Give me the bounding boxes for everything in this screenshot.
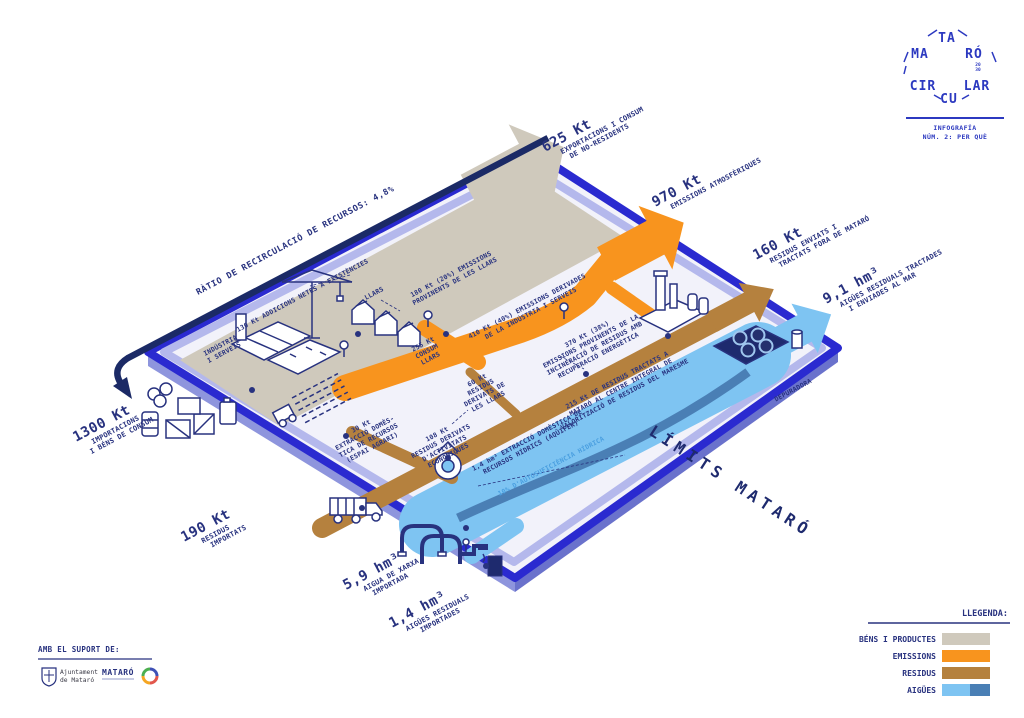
logo-part-lar: LAR bbox=[964, 79, 990, 94]
logo-subtitle-1: INFOGRAFÍA bbox=[933, 123, 976, 132]
legend-label-emissions: EMISSIONS bbox=[893, 652, 937, 661]
label-waste-out: 160 Kt RESIDUS ENVIATS I TRACTATS FORA D… bbox=[750, 193, 871, 277]
legend: LLEGENDA: BÉNS I PRODUCTES EMISSIONS RES… bbox=[859, 609, 1010, 696]
label-network-water: 5,9 hm³ AIGUA DE XARXA IMPORTADA bbox=[340, 543, 424, 608]
ajuntament-label-2: de Mataró bbox=[60, 676, 94, 684]
ajuntament-label-1: Ajuntament bbox=[60, 669, 98, 676]
support-title: AMB EL SUPORT DE: bbox=[38, 645, 120, 654]
logo-part-cir: CIR bbox=[910, 79, 936, 94]
label-water-out: 9,1 hm³ AIGÜES RESIDUALS TRACTADES I ENV… bbox=[820, 234, 947, 322]
support-block: AMB EL SUPORT DE: Ajuntament de Mataró M… bbox=[38, 645, 157, 686]
legend-swatch-goods bbox=[942, 633, 990, 645]
legend-label-goods: BÉNS I PRODUCTES bbox=[859, 633, 936, 644]
legend-swatch-water-dark bbox=[970, 684, 990, 696]
label-emissions-out: 970 Kt EMISSIONS ATMOSFÈRIQUES bbox=[649, 142, 762, 217]
logo-part-ta: TA bbox=[938, 31, 956, 46]
limits-mataro-text: LÍMITS MATARÓ bbox=[646, 421, 816, 541]
mataro-wordmark-subtext-bar bbox=[102, 678, 134, 680]
sdg-wheel-icon bbox=[143, 669, 157, 683]
label-imports: 1300 Kt IMPORTACIONS I BÉNS DE CONSUM bbox=[70, 394, 154, 459]
ajuntament-crest-icon bbox=[42, 668, 56, 686]
boundary-label: LÍMITS MATARÓ bbox=[646, 421, 816, 541]
logo-part-ro: RÓ bbox=[965, 46, 983, 62]
mataro-circular-logo: TA MA RÓ CIR LAR CU 20 30 INFOGRAFÍA NÚM… bbox=[904, 30, 1004, 141]
mataro-wordmark: MATARÓ bbox=[102, 666, 134, 677]
logo-part-cu: CU bbox=[940, 92, 958, 107]
logo-part-ma: MA bbox=[911, 47, 929, 62]
label-waste-in: 190 Kt RESIDUS IMPORTATS bbox=[178, 502, 248, 559]
legend-title: LLEGENDA: bbox=[962, 609, 1008, 619]
legend-swatch-water-light bbox=[942, 684, 970, 696]
logo-year-bottom: 30 bbox=[975, 67, 981, 73]
legend-label-waste: RESIDUS bbox=[902, 669, 936, 678]
legend-swatch-emissions bbox=[942, 650, 990, 662]
logo-subtitle-2: NÚM. 2: PER QUÈ bbox=[923, 132, 988, 141]
legend-swatch-waste bbox=[942, 667, 990, 679]
legend-label-water: AIGÜES bbox=[907, 685, 936, 695]
mataro-circular-infographic: RÀTIO DE RECIRCULACIÓ DE RECURSOS: 4,8% bbox=[0, 0, 1024, 718]
label-wastewater-in: 1,4 hm³ AIGÜES RESIDUALS IMPORTADES bbox=[386, 579, 474, 646]
